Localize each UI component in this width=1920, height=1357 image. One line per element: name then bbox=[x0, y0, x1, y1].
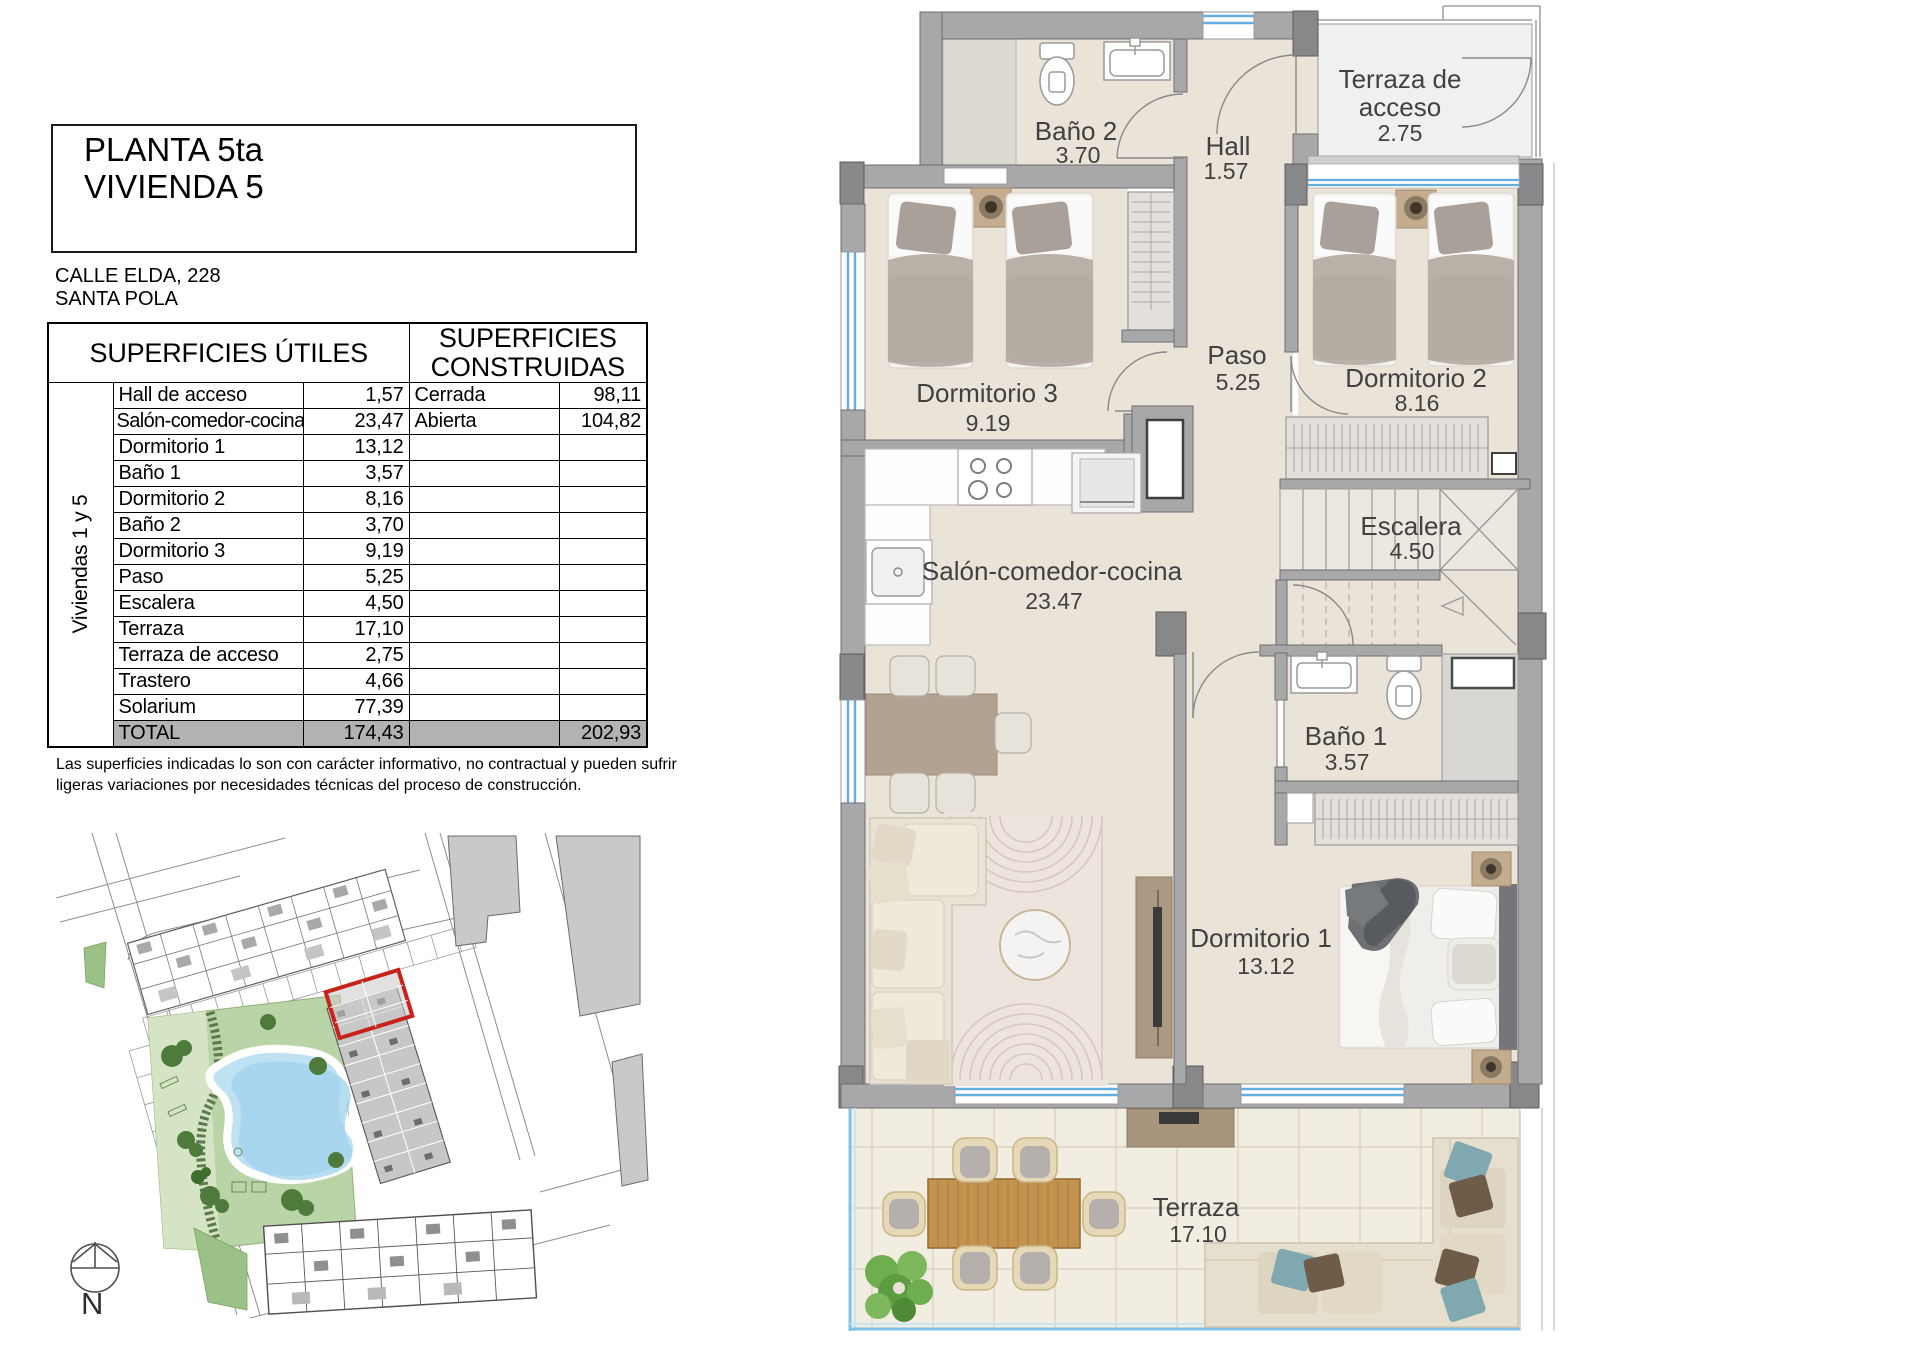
svg-text:Dormitorio 1: Dormitorio 1 bbox=[1190, 923, 1332, 953]
svg-text:3.57: 3.57 bbox=[1325, 749, 1370, 775]
svg-text:Baño 1: Baño 1 bbox=[1305, 721, 1387, 751]
svg-text:Escalera: Escalera bbox=[1360, 511, 1462, 541]
svg-text:Paso: Paso bbox=[1207, 340, 1266, 370]
svg-text:5.25: 5.25 bbox=[1216, 369, 1261, 395]
svg-text:3.70: 3.70 bbox=[1056, 142, 1101, 168]
svg-text:1.57: 1.57 bbox=[1204, 158, 1249, 184]
svg-text:Hall: Hall bbox=[1206, 131, 1251, 161]
svg-text:Salón-comedor-cocina: Salón-comedor-cocina bbox=[922, 556, 1183, 586]
svg-text:17.10: 17.10 bbox=[1169, 1221, 1227, 1247]
svg-text:Terraza: Terraza bbox=[1153, 1192, 1240, 1222]
svg-text:Dormitorio 3: Dormitorio 3 bbox=[916, 378, 1058, 408]
svg-text:23.47: 23.47 bbox=[1025, 588, 1083, 614]
svg-text:N: N bbox=[81, 1286, 103, 1321]
svg-text:Terraza de: Terraza de bbox=[1339, 64, 1462, 94]
svg-text:Dormitorio 2: Dormitorio 2 bbox=[1345, 363, 1487, 393]
svg-text:9.19: 9.19 bbox=[966, 410, 1011, 436]
svg-text:8.16: 8.16 bbox=[1395, 390, 1440, 416]
svg-text:13.12: 13.12 bbox=[1237, 953, 1295, 979]
svg-text:4.50: 4.50 bbox=[1390, 538, 1435, 564]
svg-text:2.75: 2.75 bbox=[1378, 120, 1423, 146]
svg-text:acceso: acceso bbox=[1359, 92, 1441, 122]
